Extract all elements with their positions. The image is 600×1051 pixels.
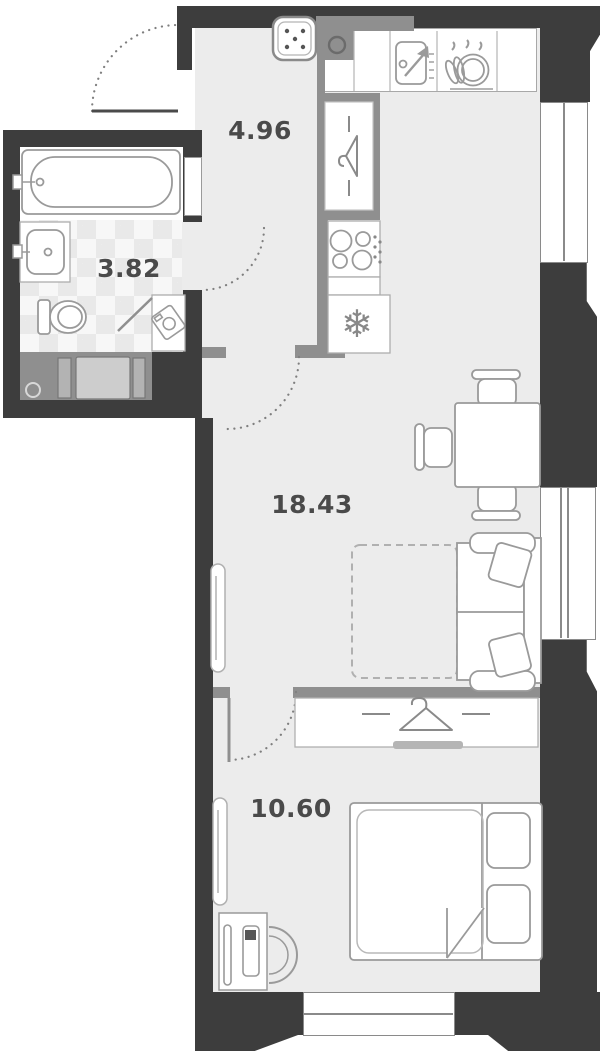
laptop-screen: [245, 930, 256, 940]
shaft-symbols: [26, 357, 145, 399]
bathtub-icon: [13, 150, 180, 214]
living-kitchen-area-label: 18.43: [252, 490, 372, 519]
chair-back: [415, 424, 424, 470]
double-bed: [350, 803, 542, 960]
snowflake-icon: ❄: [341, 302, 373, 346]
entry-door-swing-arc: [92, 25, 178, 111]
duct-circle: [329, 37, 345, 53]
dining-set: [415, 370, 540, 520]
chair-seat: [424, 428, 452, 467]
chair-seat: [478, 379, 516, 406]
bed-pillow: [487, 813, 530, 868]
dish-dryer-icon: [443, 40, 493, 89]
fridge-icon: ❄: [328, 295, 390, 353]
chair-seat: [478, 484, 516, 511]
bedroom-area-label: 10.60: [231, 794, 351, 823]
floor-plan: ❄: [0, 0, 600, 1051]
entry-door: [92, 25, 178, 111]
hallway-area-label: 4.96: [210, 116, 310, 145]
bedroom-wardrobe: [295, 698, 538, 749]
bathroom-door-swing-arc: [202, 228, 264, 290]
toilet-icon: [38, 300, 86, 334]
desk-chair: [269, 927, 297, 983]
vent-hatch-icon: [273, 17, 316, 60]
hallway-wardrobe: [325, 102, 373, 210]
bathroom-door-leaf: [118, 298, 152, 331]
radiator-living: [211, 564, 225, 672]
chair-back: [472, 370, 520, 379]
washing-machine-icon: [151, 295, 186, 351]
wardrobe-door-track: [393, 741, 463, 749]
bed-pillow: [487, 885, 530, 943]
chair-back: [472, 511, 520, 520]
dining-table: [455, 403, 540, 487]
hob-icon: [328, 221, 382, 295]
sofa-pillow: [488, 632, 532, 678]
washbasin-icon: [13, 222, 70, 282]
counter-details: [329, 31, 497, 91]
desk-chair-inner: [269, 936, 288, 974]
bedroom-door-swing-arc: [228, 692, 296, 760]
radiator-bedroom: [213, 798, 227, 905]
fixtures-overlay: ❄: [0, 0, 600, 1051]
living-door-swing-arc: [227, 357, 299, 429]
kitchen-sink-icon: [396, 42, 434, 84]
sofa: [352, 533, 541, 691]
bathroom-area-label: 3.82: [79, 254, 179, 283]
desk: [219, 913, 297, 990]
sofa-fold-out-extension: [352, 545, 457, 678]
